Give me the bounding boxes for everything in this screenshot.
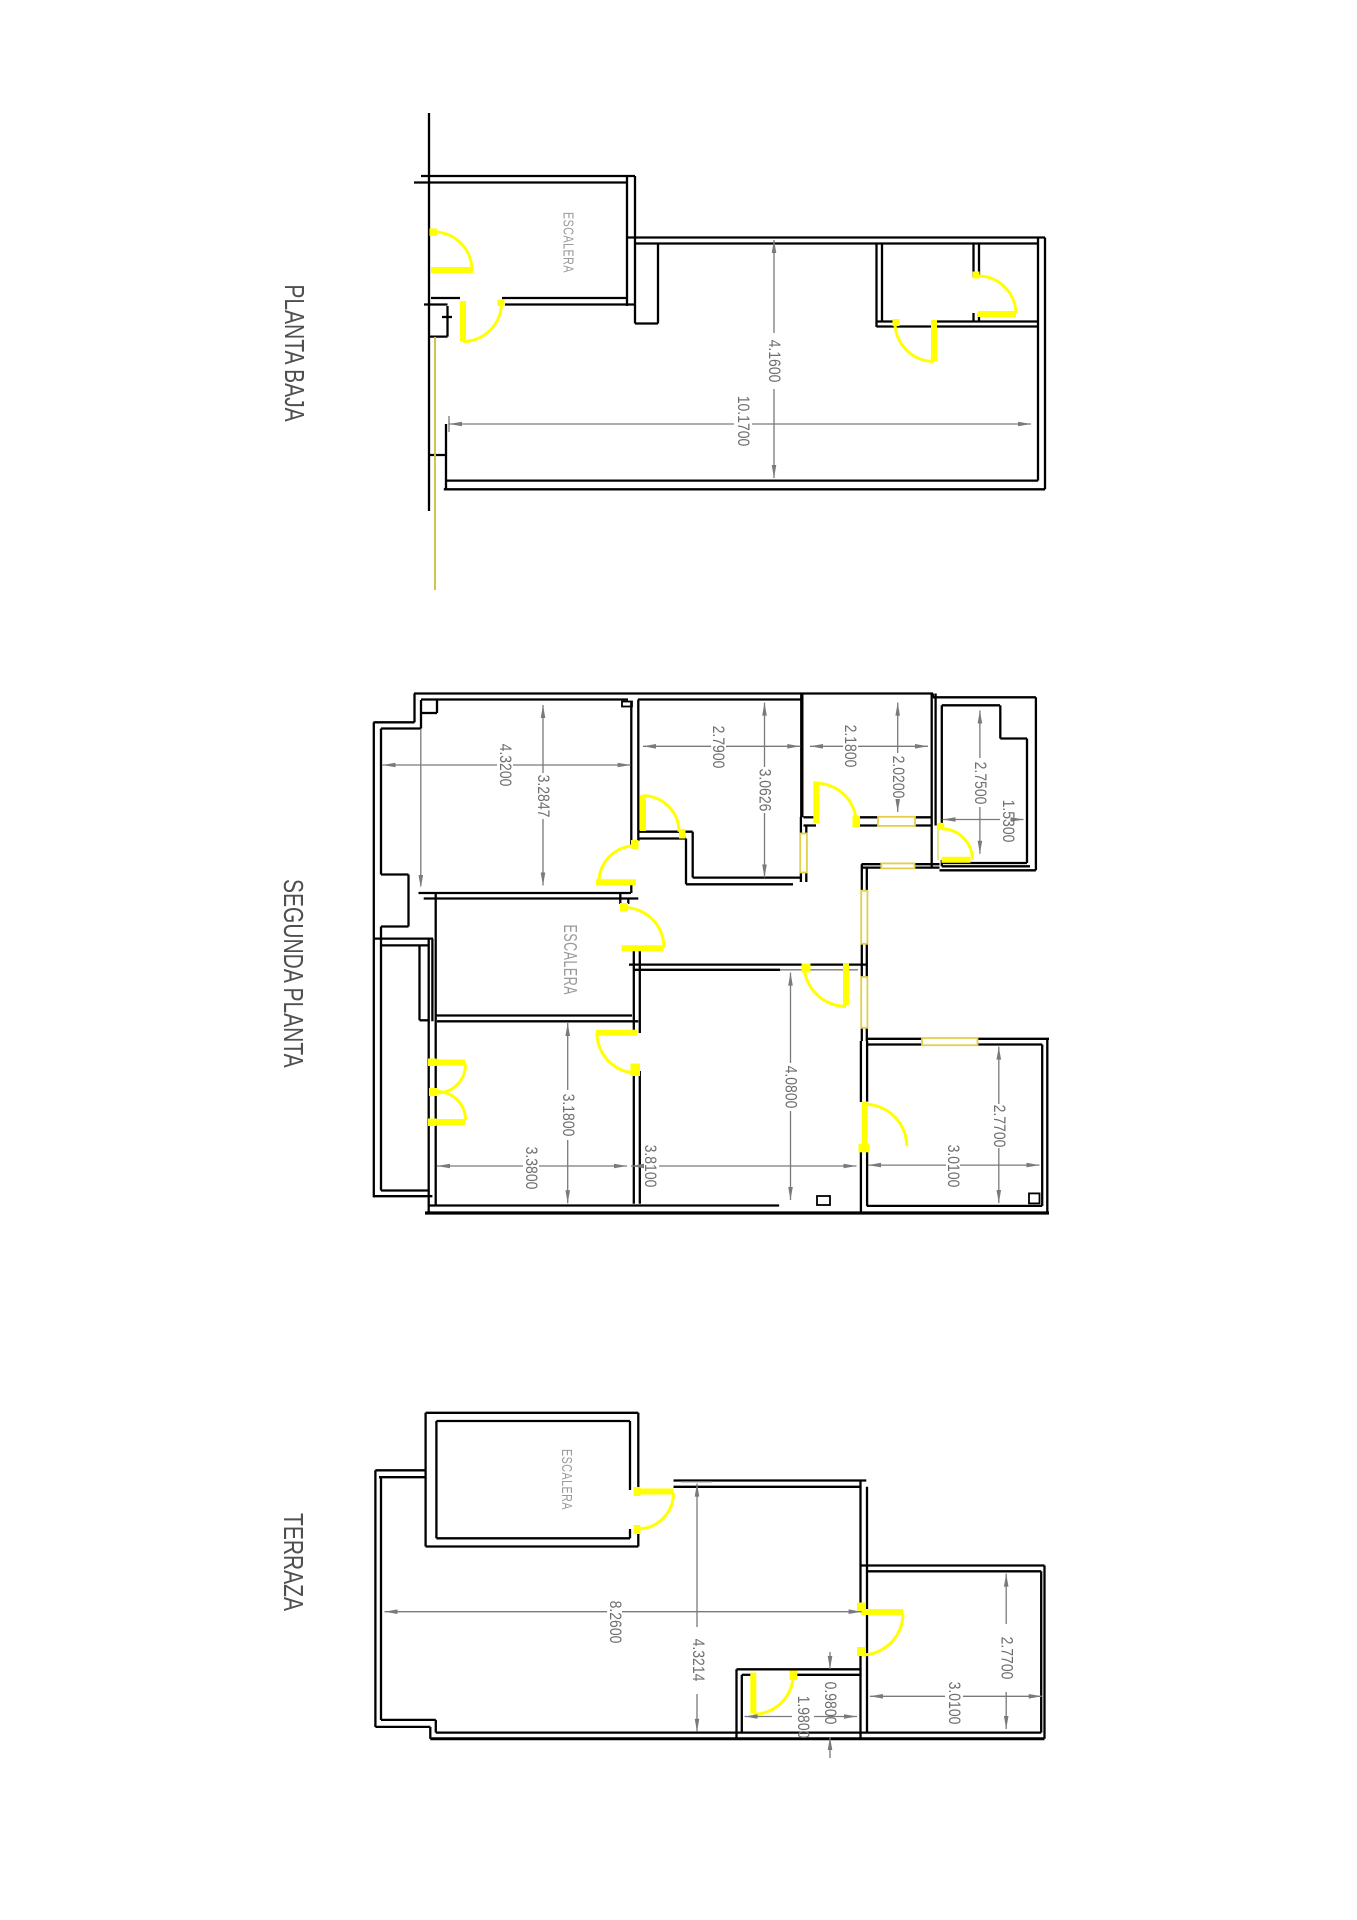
svg-text:3.0100: 3.0100	[944, 1145, 962, 1188]
svg-text:ESCALERA: ESCALERA	[559, 924, 579, 995]
svg-text:2.1800: 2.1800	[841, 725, 859, 768]
svg-text:TERRAZA: TERRAZA	[277, 1513, 307, 1611]
svg-text:4.1600: 4.1600	[765, 340, 783, 383]
svg-text:4.3214: 4.3214	[689, 1639, 707, 1682]
svg-text:3.0100: 3.0100	[945, 1682, 963, 1725]
svg-text:PLANTA BAJA: PLANTA BAJA	[278, 284, 308, 422]
svg-text:8.2600: 8.2600	[606, 1601, 624, 1644]
svg-text:3.8100: 3.8100	[641, 1145, 659, 1188]
svg-text:4.0800: 4.0800	[781, 1066, 799, 1109]
svg-text:ESCALERA: ESCALERA	[559, 1449, 576, 1510]
svg-text:2.7700: 2.7700	[997, 1637, 1015, 1680]
svg-text:3.3800: 3.3800	[522, 1147, 540, 1190]
svg-text:3.2847: 3.2847	[534, 775, 552, 818]
svg-text:10.1700: 10.1700	[734, 396, 752, 447]
svg-text:2.7700: 2.7700	[990, 1105, 1008, 1148]
svg-text:2.7900: 2.7900	[709, 726, 727, 769]
svg-text:0.9800: 0.9800	[821, 1682, 839, 1725]
svg-text:4.3200: 4.3200	[496, 744, 514, 787]
svg-text:2.0200: 2.0200	[889, 756, 907, 799]
svg-text:SEGUNDA PLANTA: SEGUNDA PLANTA	[277, 879, 307, 1068]
svg-text:2.7500: 2.7500	[971, 762, 989, 805]
svg-text:3.0626: 3.0626	[755, 769, 773, 812]
svg-text:ESCALERA: ESCALERA	[560, 212, 577, 273]
svg-text:3.1800: 3.1800	[559, 1094, 577, 1137]
svg-text:1.9800: 1.9800	[794, 1696, 812, 1739]
svg-text:1.5300: 1.5300	[999, 800, 1017, 843]
